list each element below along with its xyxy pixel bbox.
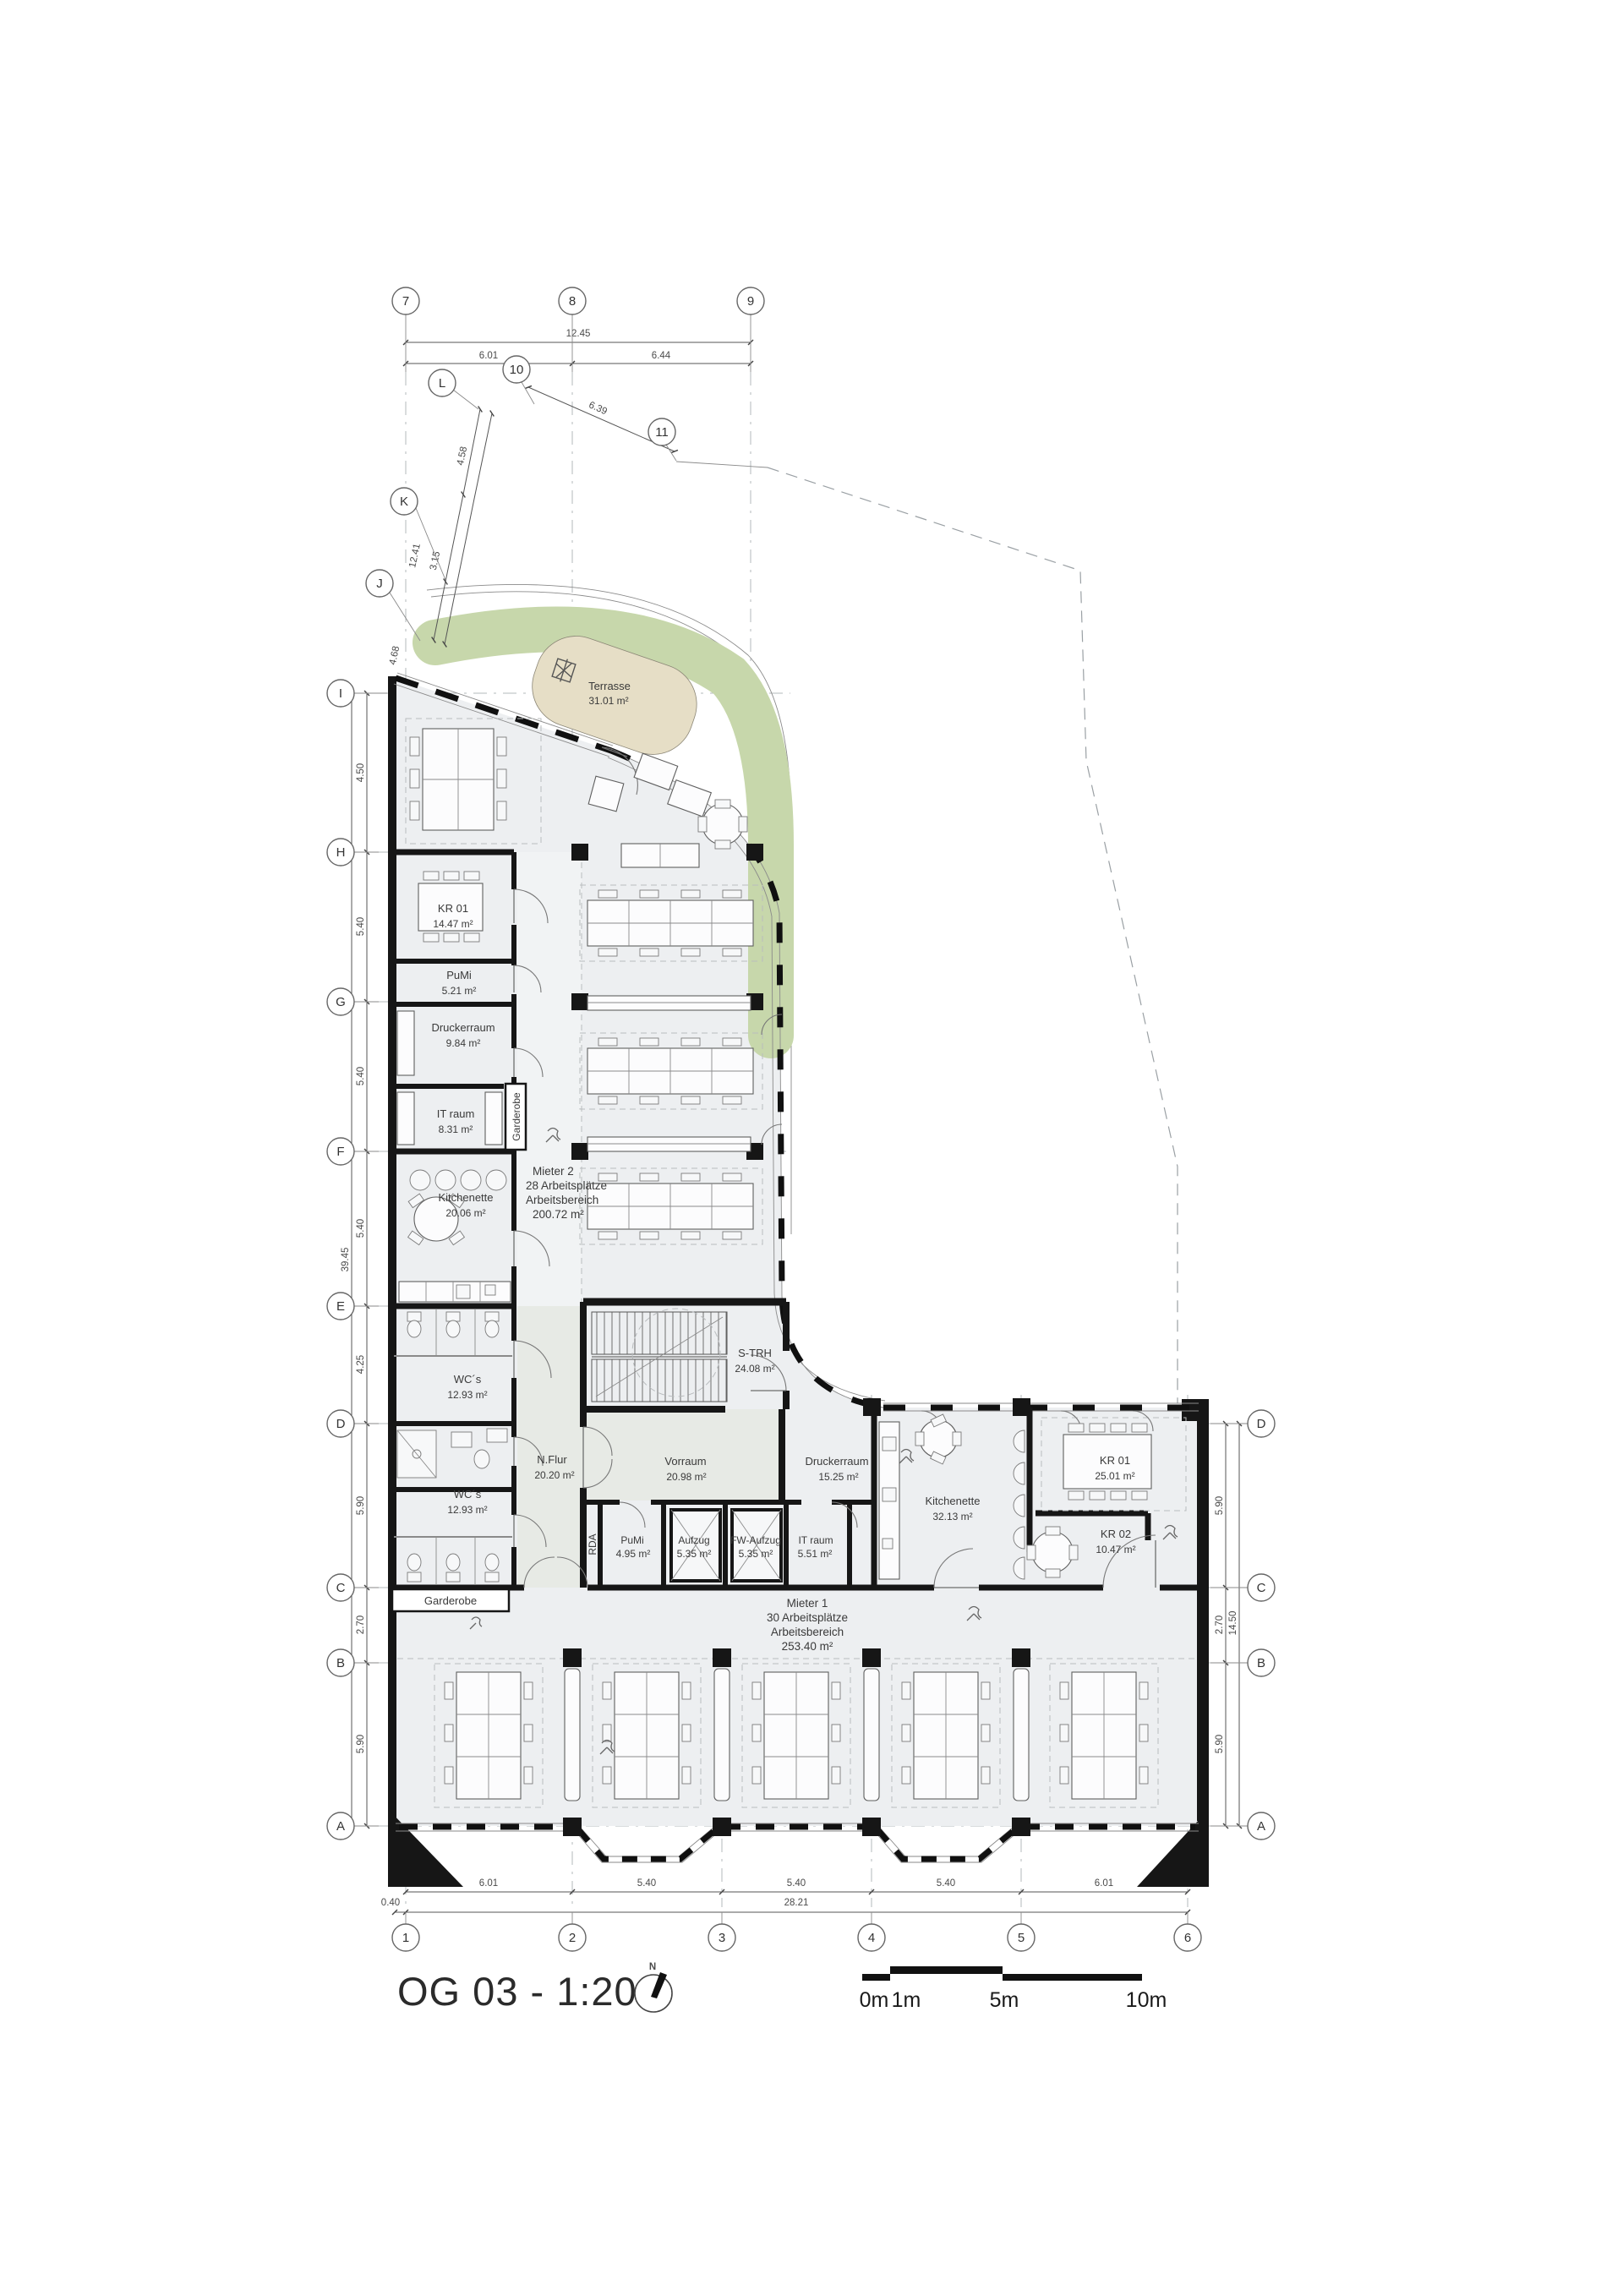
svg-text:39.45: 39.45 xyxy=(341,1248,351,1272)
bubble-C-right: C xyxy=(1248,1574,1275,1601)
bubble-A-right: A xyxy=(1248,1812,1275,1840)
svg-text:200.72 m²: 200.72 m² xyxy=(533,1208,584,1221)
svg-text:9: 9 xyxy=(747,294,754,309)
svg-text:4.50: 4.50 xyxy=(356,763,366,782)
svg-text:30 Arbeitsplätze: 30 Arbeitsplätze xyxy=(767,1611,848,1624)
svg-text:5.90: 5.90 xyxy=(1215,1496,1225,1515)
svg-text:20.20 m²: 20.20 m² xyxy=(534,1469,574,1481)
svg-text:253.40 m²: 253.40 m² xyxy=(782,1640,833,1653)
bubble-3: 3 xyxy=(708,1924,735,1951)
svg-text:C: C xyxy=(336,1581,346,1595)
svg-text:5.40: 5.40 xyxy=(637,1878,656,1889)
floor-plan-sheet: Terrasse 31.01 m² KR 01 14.47 m² PuMi 5.… xyxy=(0,0,1623,2296)
aufzug-label: Aufzug xyxy=(678,1534,709,1546)
bubble-E: E xyxy=(327,1293,354,1320)
svg-text:10.47 m²: 10.47 m² xyxy=(1096,1544,1135,1555)
druckerraum-left-label: Druckerraum xyxy=(431,1021,495,1034)
svg-text:12.93 m²: 12.93 m² xyxy=(447,1504,487,1516)
garderobe-bottom-label: Garderobe xyxy=(424,1594,477,1607)
rda-label: RDA xyxy=(587,1533,598,1555)
bubble-F: F xyxy=(327,1138,354,1165)
svg-text:5.40: 5.40 xyxy=(356,917,366,936)
svg-text:3: 3 xyxy=(719,1931,725,1945)
svg-text:8: 8 xyxy=(569,294,576,309)
kitchenette-right-label: Kitchenette xyxy=(925,1495,980,1507)
svg-text:6.44: 6.44 xyxy=(652,351,671,361)
svg-text:15.25 m²: 15.25 m² xyxy=(818,1471,858,1483)
svg-text:5.90: 5.90 xyxy=(1215,1735,1225,1753)
svg-text:12.45: 12.45 xyxy=(566,329,591,339)
svg-text:E: E xyxy=(336,1299,345,1314)
svg-text:12.93 m²: 12.93 m² xyxy=(447,1389,487,1401)
kr01-left-label: KR 01 xyxy=(438,902,468,915)
wc-lower-label: WC´s xyxy=(454,1488,482,1501)
kr01-right-label: KR 01 xyxy=(1100,1454,1130,1467)
svg-text:5.40: 5.40 xyxy=(356,1067,366,1085)
svg-text:B: B xyxy=(336,1656,345,1670)
bubble-8: 8 xyxy=(559,287,586,314)
nflur-label: N.Flur xyxy=(537,1453,567,1466)
svg-text:K: K xyxy=(400,495,408,509)
svg-text:31.01 m²: 31.01 m² xyxy=(588,695,628,707)
svg-text:6.01: 6.01 xyxy=(1095,1878,1113,1889)
kr02-label: KR 02 xyxy=(1101,1528,1131,1540)
it-raum-core-label: IT raum xyxy=(798,1534,833,1546)
bubble-1: 1 xyxy=(392,1924,419,1951)
svg-text:0.40: 0.40 xyxy=(381,1898,400,1908)
svg-text:32.13 m²: 32.13 m² xyxy=(932,1511,972,1522)
fw-aufzug-label: FW-Aufzug xyxy=(730,1534,781,1546)
bubble-B-right: B xyxy=(1248,1649,1275,1676)
svg-text:1m: 1m xyxy=(892,1988,921,2012)
vorraum-label: Vorraum xyxy=(664,1455,706,1468)
svg-text:24.08 m²: 24.08 m² xyxy=(735,1363,774,1375)
wc-upper-label: WC´s xyxy=(454,1373,482,1386)
bubble-K: K xyxy=(391,488,418,515)
page-title: OG 03 - 1:200 xyxy=(397,1969,660,2014)
bubble-G: G xyxy=(327,988,354,1015)
svg-text:Mieter 2: Mieter 2 xyxy=(533,1165,574,1178)
svg-text:4.58: 4.58 xyxy=(456,446,469,466)
svg-text:6.01: 6.01 xyxy=(479,351,498,361)
svg-text:Arbeitsbereich: Arbeitsbereich xyxy=(771,1626,844,1638)
svg-text:12.41: 12.41 xyxy=(407,543,423,569)
bubble-11: 11 xyxy=(648,418,675,446)
bubble-5: 5 xyxy=(1008,1924,1035,1951)
pumi-left-label: PuMi xyxy=(446,969,472,981)
svg-text:11: 11 xyxy=(655,425,669,440)
svg-text:5.90: 5.90 xyxy=(356,1735,366,1753)
pumi-core-label: PuMi xyxy=(620,1534,643,1546)
svg-text:4.68: 4.68 xyxy=(388,645,402,665)
terrasse-label: Terrasse xyxy=(588,680,631,692)
svg-text:4.95 m²: 4.95 m² xyxy=(616,1548,651,1560)
druckerraum-right-label: Druckerraum xyxy=(805,1455,868,1468)
title-block: OG 03 - 1:200 N 0m 1m 5m 10m xyxy=(397,1962,1167,2014)
svg-text:2.70: 2.70 xyxy=(356,1615,366,1634)
svg-text:5: 5 xyxy=(1018,1931,1025,1945)
svg-text:5.51 m²: 5.51 m² xyxy=(798,1548,833,1560)
svg-text:Mieter 1: Mieter 1 xyxy=(787,1597,828,1610)
svg-text:14.47 m²: 14.47 m² xyxy=(433,918,473,930)
svg-text:10m: 10m xyxy=(1126,1988,1167,2012)
svg-text:A: A xyxy=(1257,1819,1265,1834)
svg-text:5.40: 5.40 xyxy=(356,1219,366,1238)
svg-text:8.31 m²: 8.31 m² xyxy=(439,1123,473,1135)
svg-text:L: L xyxy=(439,376,445,391)
svg-text:2: 2 xyxy=(569,1931,576,1945)
svg-text:5.35 m²: 5.35 m² xyxy=(677,1548,712,1560)
svg-text:5.40: 5.40 xyxy=(787,1878,806,1889)
svg-text:5.90: 5.90 xyxy=(356,1496,366,1515)
svg-text:14.50: 14.50 xyxy=(1228,1611,1238,1636)
svg-text:20.98 m²: 20.98 m² xyxy=(666,1471,706,1483)
svg-text:I: I xyxy=(339,686,342,701)
bubble-2: 2 xyxy=(559,1924,586,1951)
svg-text:J: J xyxy=(376,577,383,591)
bubble-H: H xyxy=(327,839,354,866)
bubble-I: I xyxy=(327,680,354,707)
svg-text:20.06 m²: 20.06 m² xyxy=(445,1207,485,1219)
it-raum-left-label: IT raum xyxy=(437,1107,475,1120)
scale-bar: 0m 1m 5m 10m xyxy=(860,1966,1167,2012)
svg-text:6.01: 6.01 xyxy=(479,1878,498,1889)
svg-text:10: 10 xyxy=(510,363,524,377)
bubble-A-left: A xyxy=(327,1812,354,1840)
bubble-L: L xyxy=(429,369,456,396)
svg-text:F: F xyxy=(336,1145,344,1159)
svg-text:7: 7 xyxy=(402,294,409,309)
svg-text:Arbeitsbereich: Arbeitsbereich xyxy=(526,1194,598,1206)
bubble-9: 9 xyxy=(737,287,764,314)
bubble-4: 4 xyxy=(858,1924,885,1951)
svg-text:4: 4 xyxy=(868,1931,875,1945)
svg-text:5.21 m²: 5.21 m² xyxy=(442,985,477,997)
bubble-J: J xyxy=(366,570,393,597)
svg-text:A: A xyxy=(336,1819,345,1834)
garderobe-top-label: Garderobe xyxy=(511,1092,522,1141)
svg-text:4.25: 4.25 xyxy=(356,1355,366,1374)
svg-text:D: D xyxy=(336,1417,346,1431)
svg-text:28 Arbeitsplätze: 28 Arbeitsplätze xyxy=(526,1179,607,1192)
bubble-D-left: D xyxy=(327,1410,354,1437)
svg-text:28.21: 28.21 xyxy=(784,1898,809,1908)
bubble-B-left: B xyxy=(327,1649,354,1676)
bubble-7: 7 xyxy=(392,287,419,314)
bubble-6: 6 xyxy=(1174,1924,1201,1951)
svg-text:0m: 0m xyxy=(860,1988,889,2012)
svg-text:G: G xyxy=(336,995,346,1009)
svg-text:2.70: 2.70 xyxy=(1215,1615,1225,1634)
facade-window-arcs xyxy=(762,1014,1153,1431)
svg-text:1: 1 xyxy=(402,1931,409,1945)
kitchenette-left-label: Kitchenette xyxy=(438,1191,493,1204)
floor-plan-drawing: Terrasse 31.01 m² KR 01 14.47 m² PuMi 5.… xyxy=(0,0,1623,2296)
strh-label: S-TRH xyxy=(738,1347,772,1359)
svg-text:5.40: 5.40 xyxy=(937,1878,955,1889)
svg-text:9.84 m²: 9.84 m² xyxy=(446,1037,481,1049)
svg-text:B: B xyxy=(1257,1656,1265,1670)
mieter2-desk-rows xyxy=(580,885,762,1244)
svg-text:N: N xyxy=(649,1962,656,1972)
bubble-C-left: C xyxy=(327,1574,354,1601)
svg-text:C: C xyxy=(1257,1581,1266,1595)
svg-text:H: H xyxy=(336,845,346,860)
svg-text:5.35 m²: 5.35 m² xyxy=(739,1548,773,1560)
bubble-D-right: D xyxy=(1248,1410,1275,1437)
svg-text:5m: 5m xyxy=(990,1988,1019,2012)
svg-text:25.01 m²: 25.01 m² xyxy=(1095,1470,1134,1482)
svg-text:D: D xyxy=(1257,1417,1266,1431)
svg-text:6: 6 xyxy=(1184,1931,1191,1945)
bubble-10: 10 xyxy=(503,356,530,383)
